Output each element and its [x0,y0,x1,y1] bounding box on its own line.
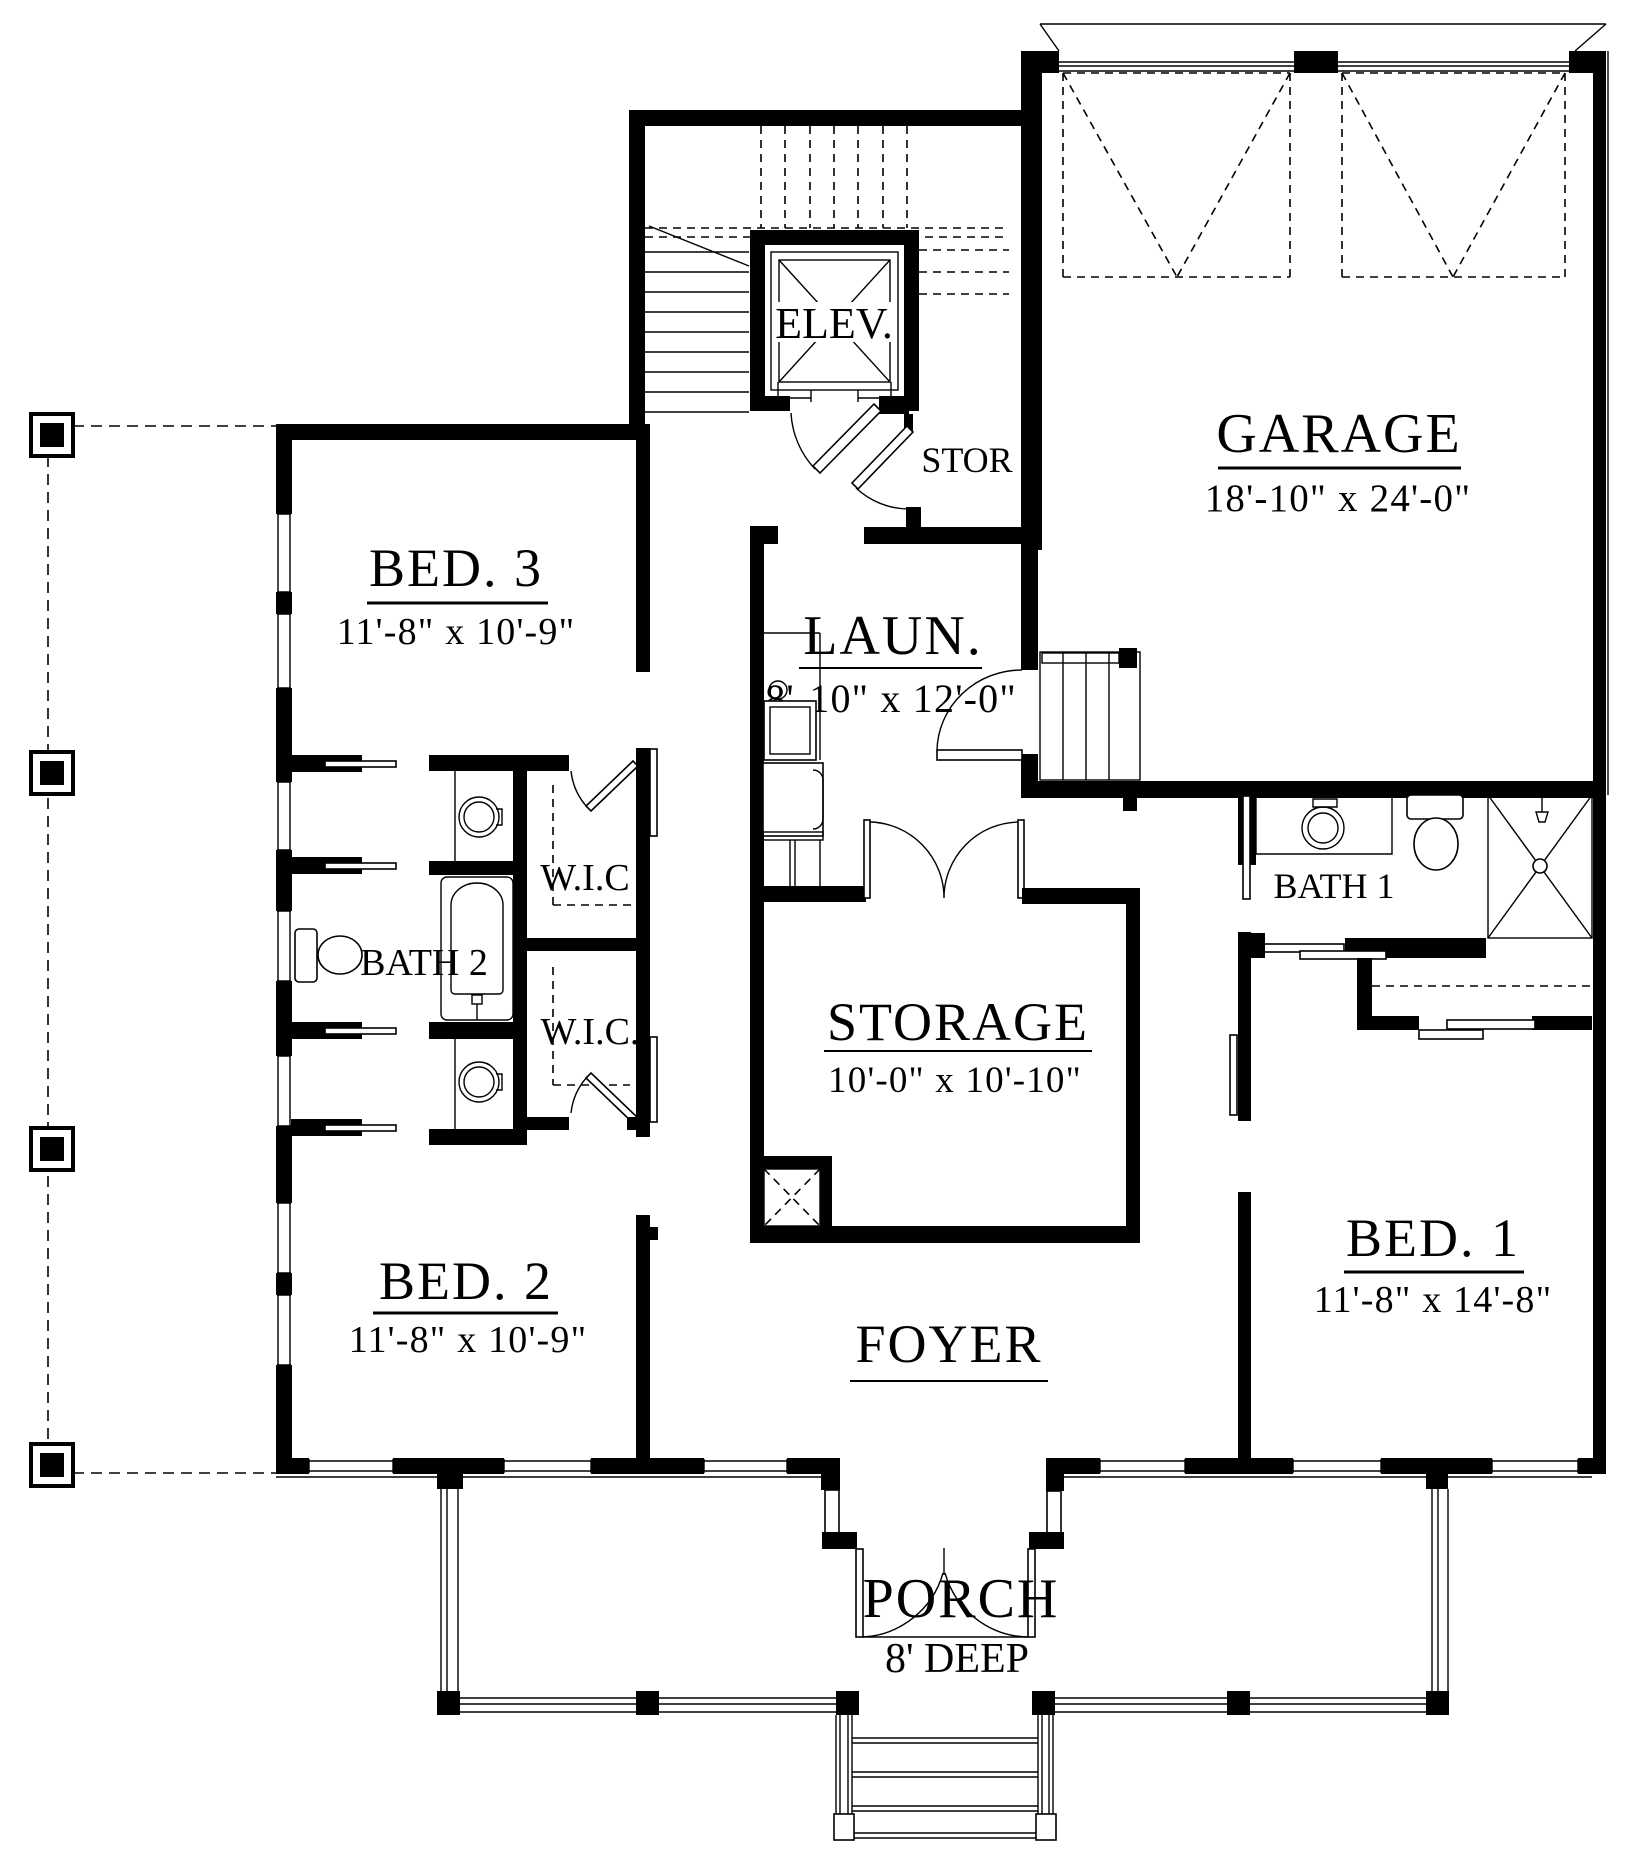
svg-text:11'-8" x 10'-9": 11'-8" x 10'-9" [337,611,576,653]
svg-text:STOR: STOR [921,440,1012,480]
svg-text:ELEV.: ELEV. [775,299,893,348]
svg-text:BED. 1: BED. 1 [1346,1208,1520,1268]
svg-text:GARAGE: GARAGE [1216,403,1461,465]
svg-text:BATH 1: BATH 1 [1273,866,1394,906]
svg-text:11'-8" x 14'-8": 11'-8" x 14'-8" [1314,1279,1553,1321]
svg-text:W.I.C: W.I.C [540,857,629,899]
svg-text:18'-10" x 24'-0": 18'-10" x 24'-0" [1205,477,1472,520]
svg-text:BED. 2: BED. 2 [379,1251,553,1311]
svg-text:STORAGE: STORAGE [827,992,1089,1052]
svg-text:10'-0" x 10'-10": 10'-0" x 10'-10" [828,1060,1082,1101]
svg-text:BATH 2: BATH 2 [360,942,488,984]
svg-text:PORCH: PORCH [863,1568,1060,1630]
svg-text:11'-8" x 10'-9": 11'-8" x 10'-9" [349,1319,588,1361]
svg-text:8' DEEP: 8' DEEP [885,1636,1029,1682]
svg-text:BED. 3: BED. 3 [369,538,543,598]
svg-text:FOYER: FOYER [855,1314,1042,1374]
svg-text:W.I.C.: W.I.C. [541,1011,640,1053]
svg-text:LAUN.: LAUN. [803,605,983,667]
